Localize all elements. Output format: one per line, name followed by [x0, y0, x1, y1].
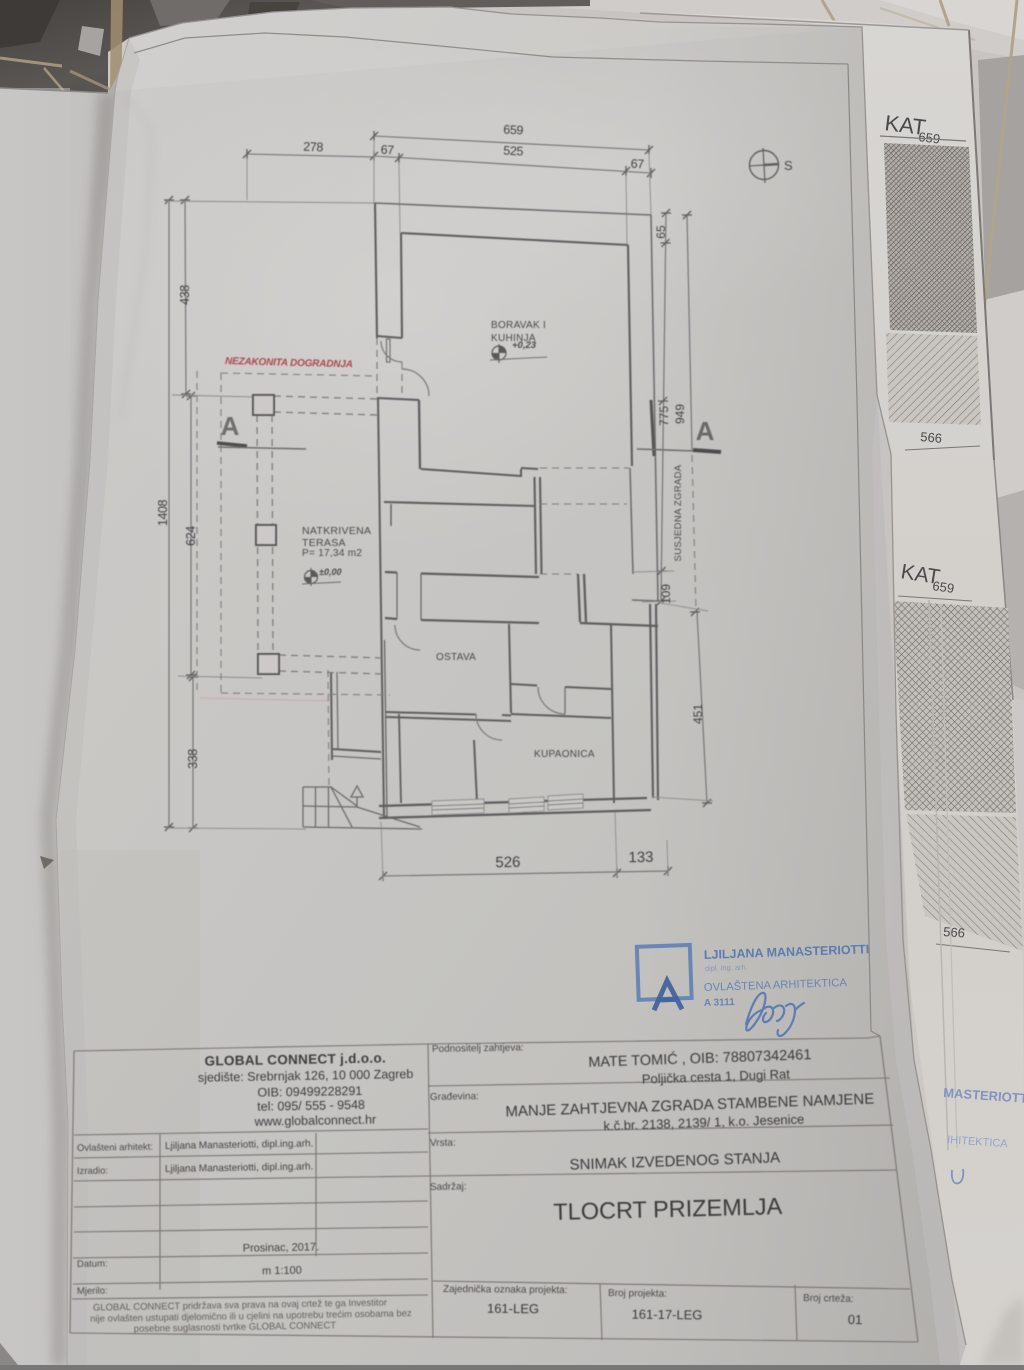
- svg-text:Mjerilo:: Mjerilo:: [77, 1285, 108, 1297]
- svg-text:Broj crteža:: Broj crteža:: [803, 1293, 854, 1305]
- svg-text:659: 659: [932, 578, 956, 596]
- svg-text:65: 65: [654, 225, 668, 239]
- svg-text:A 3111: A 3111: [704, 997, 736, 1009]
- svg-text:P= 17,34 m2: P= 17,34 m2: [302, 548, 362, 559]
- svg-text:GLOBAL CONNECT j.d.o.o.: GLOBAL CONNECT j.d.o.o.: [204, 1050, 386, 1068]
- svg-text:S: S: [784, 158, 793, 173]
- svg-text:161-LEG: 161-LEG: [487, 1301, 539, 1316]
- svg-text:451: 451: [691, 704, 705, 724]
- svg-text:tel: 095/ 555 - 9548: tel: 095/ 555 - 9548: [257, 1098, 365, 1114]
- svg-text:566: 566: [920, 429, 943, 446]
- svg-text:m 1:100: m 1:100: [262, 1265, 302, 1278]
- svg-text:338: 338: [186, 749, 200, 769]
- svg-text:01: 01: [848, 1312, 863, 1327]
- svg-text:BORAVAK I: BORAVAK I: [491, 320, 546, 331]
- svg-text:KUPAONICA: KUPAONICA: [534, 749, 595, 760]
- svg-text:KUHINJA: KUHINJA: [491, 333, 536, 344]
- svg-text:438: 438: [178, 285, 192, 305]
- svg-text:566: 566: [943, 924, 966, 940]
- svg-text:A: A: [221, 411, 240, 441]
- svg-text:659: 659: [503, 123, 524, 138]
- svg-text:133: 133: [628, 849, 653, 866]
- svg-text:949: 949: [673, 404, 687, 424]
- svg-text:SUSJEDNA ZGRADA: SUSJEDNA ZGRADA: [673, 464, 684, 561]
- svg-text:161-17-LEG: 161-17-LEG: [632, 1307, 703, 1323]
- svg-text:Građevina:: Građevina:: [430, 1091, 479, 1103]
- svg-text:Sadržaj:: Sadržaj:: [430, 1181, 467, 1193]
- svg-text:Podnositelj zahtjeva:: Podnositelj zahtjeva:: [432, 1042, 524, 1055]
- svg-text:Vrsta:: Vrsta:: [430, 1138, 456, 1149]
- svg-text:±0,00: ±0,00: [319, 567, 341, 577]
- svg-text:624: 624: [184, 526, 198, 546]
- svg-text:www.globalconnect.hr: www.globalconnect.hr: [253, 1113, 376, 1129]
- svg-text:775: 775: [657, 406, 671, 426]
- svg-text:525: 525: [503, 144, 524, 159]
- svg-text:109: 109: [659, 584, 673, 604]
- svg-text:Izradio:: Izradio:: [77, 1165, 108, 1177]
- svg-text:Prosinac, 2017.: Prosinac, 2017.: [243, 1241, 320, 1254]
- svg-text:dipl. ing. arh.: dipl. ing. arh.: [705, 963, 748, 973]
- svg-text:278: 278: [303, 140, 324, 155]
- svg-text:Datum:: Datum:: [77, 1258, 108, 1270]
- svg-text:67: 67: [630, 157, 644, 172]
- svg-text:Ovlašteni arhitekt:: Ovlašteni arhitekt:: [77, 1142, 153, 1154]
- svg-text:Zajednička oznaka projekta:: Zajednička oznaka projekta:: [443, 1284, 568, 1296]
- svg-text:1408: 1408: [156, 499, 170, 526]
- svg-text:Broj projekta:: Broj projekta:: [608, 1288, 667, 1300]
- svg-text:NATKRIVENA: NATKRIVENA: [302, 525, 371, 537]
- svg-text:526: 526: [495, 854, 520, 871]
- svg-text:67: 67: [380, 143, 394, 158]
- svg-text:OSTAVA: OSTAVA: [436, 652, 476, 663]
- svg-text:A: A: [696, 416, 715, 446]
